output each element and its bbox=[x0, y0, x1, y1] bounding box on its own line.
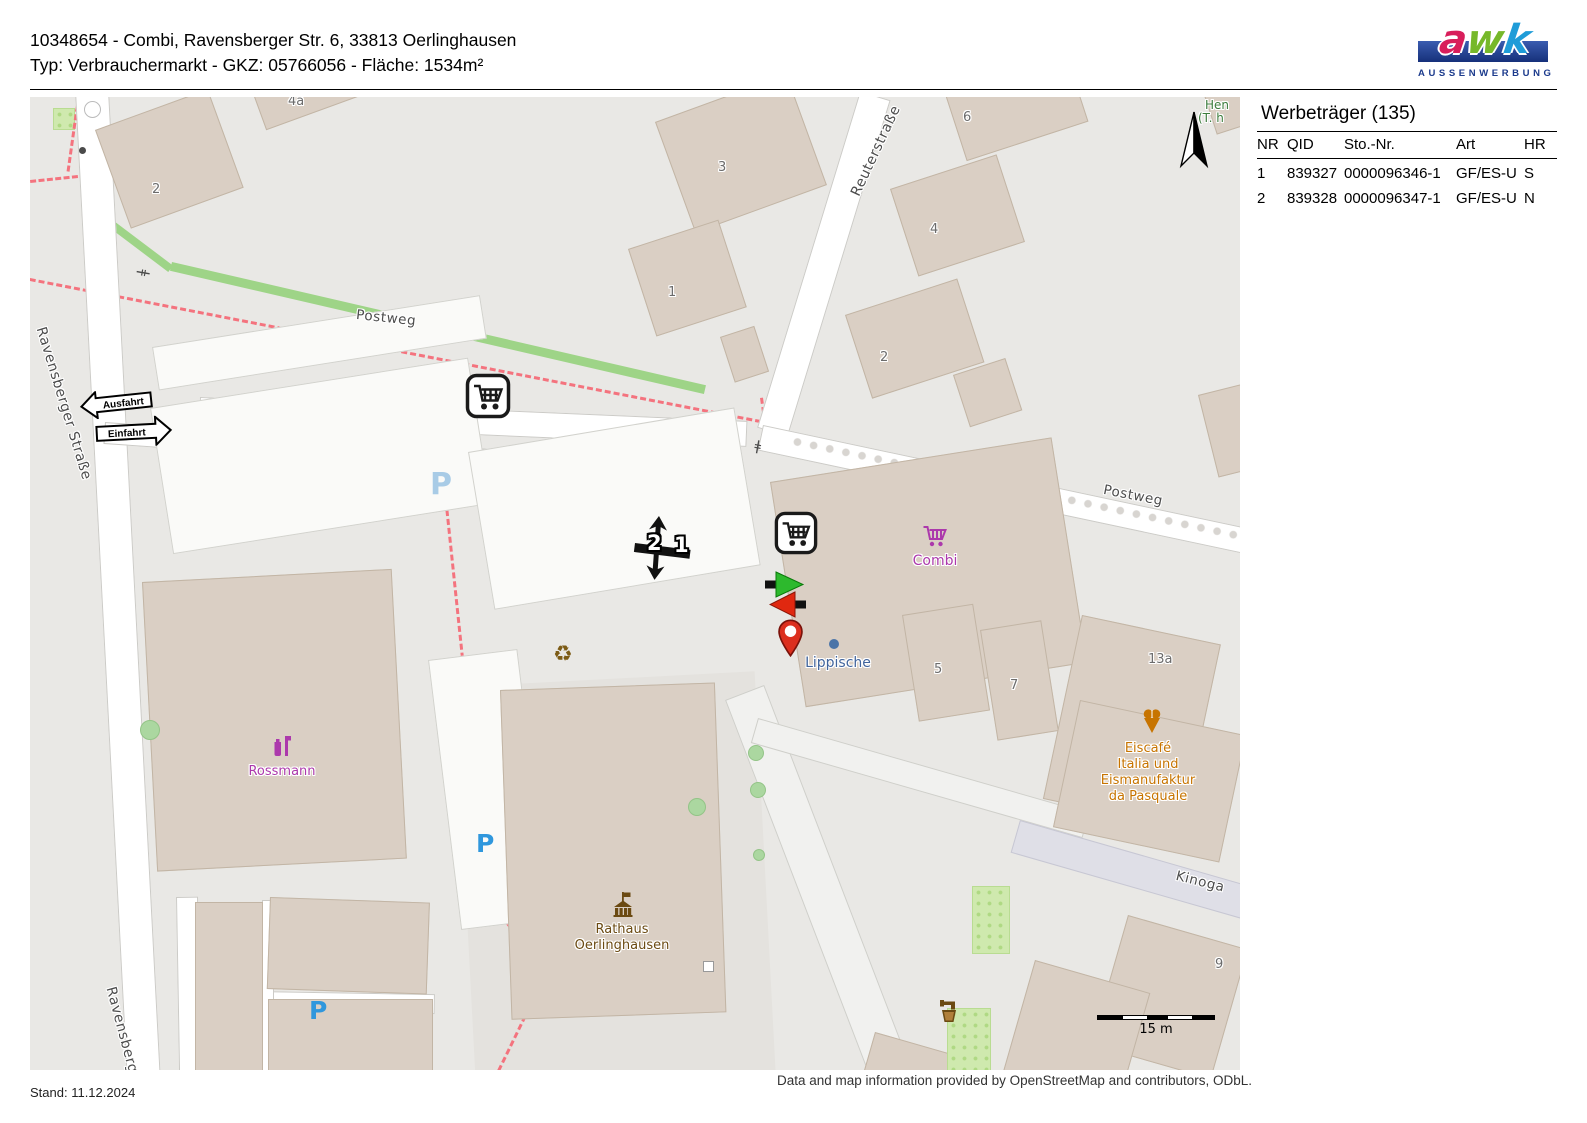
location-pin-icon bbox=[778, 619, 803, 657]
building bbox=[267, 897, 430, 995]
chemist-icon bbox=[268, 732, 296, 760]
tree bbox=[140, 720, 160, 740]
gate-icon: ǂ bbox=[753, 438, 762, 455]
parking-letter: P bbox=[309, 996, 327, 1025]
einfahrt-label: Einfahrt bbox=[108, 427, 147, 440]
house-number: 4 bbox=[930, 222, 938, 237]
col-hr: HR bbox=[1524, 132, 1557, 159]
awk-logo: awk AUSSENWERBUNG bbox=[1418, 24, 1555, 84]
poi-label-rathaus-2: Oerlinghausen bbox=[562, 938, 682, 953]
tree bbox=[688, 798, 706, 816]
cell-art: GF/ES-U bbox=[1456, 159, 1524, 185]
table-row: 1 839327 0000096346-1 GF/ES-U S bbox=[1257, 159, 1557, 185]
building bbox=[1198, 383, 1240, 478]
recycling-icon: ♻ bbox=[553, 642, 573, 667]
icecream-icon bbox=[1142, 708, 1162, 734]
scrub-patch bbox=[972, 886, 1010, 954]
site-number-2: 2 bbox=[647, 531, 662, 555]
house-number: 1 bbox=[668, 285, 676, 300]
arrow-red-icon bbox=[769, 591, 806, 618]
house-number: 9 bbox=[1215, 957, 1223, 972]
gate-icon: ǂ bbox=[135, 268, 152, 277]
gate-square bbox=[703, 961, 714, 972]
building bbox=[890, 154, 1025, 276]
house-number: 3 bbox=[718, 160, 726, 175]
building bbox=[268, 999, 433, 1070]
scale-label: 15 m bbox=[1097, 1022, 1215, 1037]
building bbox=[195, 902, 263, 1070]
poi-label-eiscafe-3: Eismanufaktur bbox=[1078, 773, 1218, 788]
poi-label-eiscafe-2: Italia und bbox=[1078, 757, 1218, 772]
building bbox=[628, 220, 747, 337]
footpath bbox=[30, 175, 78, 183]
panel-title: Werbeträger (135) bbox=[1261, 103, 1587, 125]
parking-row bbox=[468, 407, 761, 609]
water-tap-icon bbox=[938, 997, 960, 1023]
supermarket-icon bbox=[774, 511, 818, 555]
stand-date: Stand: 11.12.2024 bbox=[30, 1085, 135, 1100]
north-arrow-icon bbox=[1178, 110, 1210, 170]
poi-label-eiscafe-4: da Pasquale bbox=[1078, 789, 1218, 804]
col-qid: QID bbox=[1287, 132, 1344, 159]
page-title: 10348654 - Combi, Ravensberger Str. 6, 3… bbox=[30, 30, 516, 51]
turning-circle bbox=[84, 101, 101, 118]
poi-label-combi: Combi bbox=[885, 553, 985, 569]
cell-stonr: 0000096347-1 bbox=[1344, 184, 1456, 209]
cell-qid: 839328 bbox=[1287, 184, 1344, 209]
scale-bar-segment bbox=[1123, 1016, 1147, 1019]
poi-label-eiscafe-1: Eiscafé bbox=[1078, 741, 1218, 756]
table-row: 2 839328 0000096347-1 GF/ES-U N bbox=[1257, 184, 1557, 209]
logo-subtext: AUSSENWERBUNG bbox=[1418, 68, 1555, 79]
einfahrt-sign: Einfahrt bbox=[94, 415, 173, 449]
cell-hr: N bbox=[1524, 184, 1557, 209]
map-attribution: Data and map information provided by Ope… bbox=[760, 1073, 1252, 1088]
page-subtitle: Typ: Verbrauchermarkt - GKZ: 05766056 - … bbox=[30, 55, 483, 76]
house-number: 2 bbox=[880, 350, 888, 365]
tree bbox=[753, 849, 765, 861]
cell-stonr: 0000096346-1 bbox=[1344, 159, 1456, 185]
building-rathaus bbox=[500, 682, 726, 1019]
site-number-1: 1 bbox=[674, 533, 689, 557]
cell-qid: 839327 bbox=[1287, 159, 1344, 185]
supermarket-icon bbox=[465, 373, 511, 419]
building-rossmann bbox=[142, 569, 407, 872]
cell-nr: 2 bbox=[1257, 184, 1287, 209]
parking-row bbox=[150, 358, 491, 555]
poi-label-rossmann: Rossmann bbox=[222, 764, 342, 779]
report-page: { "header": { "title": "10348654 - Combi… bbox=[0, 0, 1587, 1123]
cell-hr: S bbox=[1524, 159, 1557, 185]
poi-label-lippische: Lippische bbox=[788, 655, 888, 671]
header-divider bbox=[30, 89, 1557, 90]
building bbox=[655, 97, 827, 233]
werbetraeger-panel: Werbeträger (135) NR QID Sto.-Nr. Art HR… bbox=[1240, 95, 1587, 209]
building bbox=[942, 97, 1088, 161]
cart-icon-magenta bbox=[922, 524, 949, 548]
cell-nr: 1 bbox=[1257, 159, 1287, 185]
parking-letter: P bbox=[476, 829, 494, 858]
tree bbox=[750, 782, 766, 798]
logo-awk-text: awk bbox=[1437, 17, 1534, 63]
townhall-icon bbox=[610, 890, 636, 918]
cell-art: GF/ES-U bbox=[1456, 184, 1524, 209]
poi-dot-lippische bbox=[829, 639, 839, 649]
map-canvas: ǂ ǂ 2 4a 3 1 6 4 2 5 7 13a 9 Ravensberge… bbox=[30, 97, 1240, 1070]
house-number: 13a bbox=[1148, 652, 1173, 667]
col-stonr: Sto.-Nr. bbox=[1344, 132, 1456, 159]
house-number: 4a bbox=[288, 97, 304, 109]
scale-bar-segment bbox=[1168, 1016, 1192, 1019]
werbetraeger-table: NR QID Sto.-Nr. Art HR 1 839327 00000963… bbox=[1257, 131, 1557, 209]
table-header-row: NR QID Sto.-Nr. Art HR bbox=[1257, 132, 1557, 159]
house-number: 6 bbox=[963, 110, 971, 125]
house-number: 2 bbox=[152, 182, 160, 197]
tree bbox=[748, 745, 764, 761]
scale-bar bbox=[1097, 1015, 1215, 1020]
house-number: 5 bbox=[934, 662, 942, 677]
building bbox=[245, 97, 370, 130]
parking-letter: P bbox=[430, 467, 452, 502]
poi-label-rathaus-1: Rathaus bbox=[572, 922, 672, 937]
bollard-dot bbox=[79, 147, 86, 154]
building bbox=[95, 97, 244, 229]
house-number: 7 bbox=[1010, 678, 1018, 693]
col-nr: NR bbox=[1257, 132, 1287, 159]
building bbox=[720, 326, 769, 383]
col-art: Art bbox=[1456, 132, 1524, 159]
